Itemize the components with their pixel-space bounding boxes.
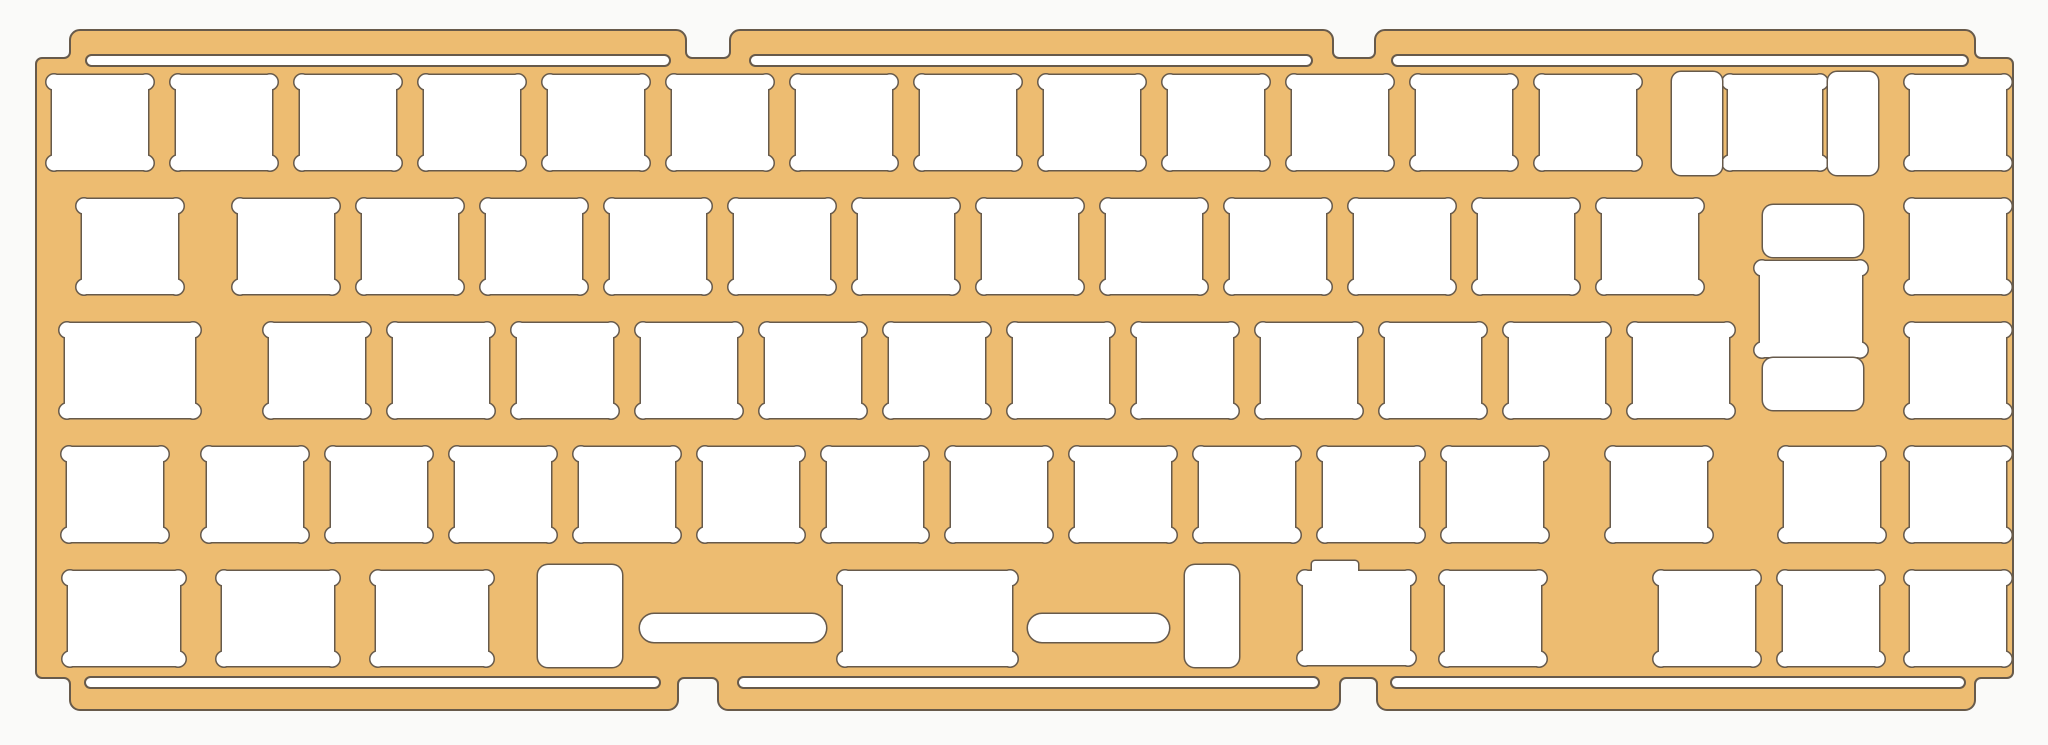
keyboard-plate-drawing [0,0,2048,745]
switch-cutout-shift-row [698,447,805,543]
switch-cutout-number-row [295,75,402,171]
switch-cutout-bottom-row-mod [217,571,340,667]
bottom-edge-slot-middle [738,677,1319,688]
switch-cutout-shift-row [1194,447,1301,543]
switch-cutout-caps-row [512,323,619,419]
switch-cutout-tab-row [1597,199,1704,295]
top-edge-slot-left [86,55,670,66]
bottom-row-mod-stepped-cutout [1298,561,1416,666]
spacebar-stab-left-cutout [538,565,622,667]
switch-cutout-caps-row [1628,323,1735,419]
iso-enter-stab-bottom-cutout [1763,358,1863,410]
switch-cutout-number-row-backspace [1723,75,1828,171]
spacebar-stab-right-cutout [1185,565,1239,667]
switch-cutout-tab-row [605,199,712,295]
switch-cutout-caps-row [388,323,495,419]
spacebar-slot-left-cutout [640,614,826,642]
switch-cutout-number-row [1905,75,2012,171]
switch-cutout-tab-row [853,199,960,295]
switch-cutout-shift-row [450,447,557,543]
switch-cutout-shift-row-rshift [1606,447,1713,543]
backspace-stab-right-cutout [1828,72,1878,175]
switch-cutout-bottom-row-mod [63,571,186,667]
switch-cutout-caps-row [1504,323,1611,419]
switch-cutout-tab-row [1101,199,1208,295]
switch-cutout-number-row [1039,75,1146,171]
switch-cutout-number-row [1411,75,1518,171]
top-edge-slot-right [1392,55,1968,66]
switch-cutout-shift-row [574,447,681,543]
switch-cutout-caps-row [636,323,743,419]
switch-cutout-caps-row [1132,323,1239,419]
switch-cutout-iso-enter [1755,261,1868,358]
switch-cutout-caps-row [1380,323,1487,419]
switch-cutout-tab-row [977,199,1084,295]
switch-cutout-number-row [1535,75,1642,171]
spacebar-slot-right-cutout [1028,614,1169,642]
switch-cutout-number-row [667,75,774,171]
switch-cutout-tab-row [481,199,588,295]
switch-cutout-number-row [47,75,154,171]
switch-cutout-number-row [1163,75,1270,171]
switch-cutout-bottom-row-arrow [1654,571,1761,667]
iso-enter-stab-top-cutout [1763,205,1863,257]
switch-cutout-tab-row [357,199,464,295]
switch-cutout-bottom-row-spacebar [838,571,1018,667]
switch-cutout-shift-row [1070,447,1177,543]
switch-cutout-caps-row [884,323,991,419]
top-edge-slot-middle [750,55,1312,66]
switch-cutout-shift-row [1318,447,1425,543]
keyboard-plate-svg [0,0,2048,745]
switch-cutout-shift-row [822,447,929,543]
switch-cutout-shift-row-lshift [62,447,169,543]
switch-cutout-number-row [915,75,1022,171]
switch-cutout-tab-row [233,199,340,295]
switch-cutout-shift-row [326,447,433,543]
switch-cutout-caps-row [1256,323,1363,419]
switch-cutout-number-row [171,75,278,171]
switch-cutout-bottom-row-arrow [1905,571,2012,667]
switch-cutout-number-row [791,75,898,171]
switch-cutout-tab-row [1473,199,1580,295]
switch-cutout-bottom-row-arrow [1778,571,1885,667]
switch-cutout-caps-row [760,323,867,419]
switch-cutout-tab-row [1905,199,2012,295]
switch-cutout-number-row [543,75,650,171]
switch-cutout-caps-row [1008,323,1115,419]
switch-cutout-tab-row [1225,199,1332,295]
switch-cutout-caps-row [264,323,371,419]
switch-cutout-shift-row [1779,447,1886,543]
switch-cutout-bottom-row-mod [1440,571,1547,667]
switch-cutout-tab-row [729,199,836,295]
backspace-stab-left-cutout [1672,72,1722,175]
switch-cutout-caps-row [1905,323,2012,419]
switch-cutout-tab-row [77,199,184,295]
switch-cutout-number-row [1287,75,1394,171]
switch-cutout-bottom-row-mod [371,571,494,667]
bottom-edge-slot-left [85,677,660,688]
switch-cutout-tab-row [1349,199,1456,295]
switch-cutout-shift-row [1442,447,1549,543]
switch-cutout-shift-row [946,447,1053,543]
switch-cutout-caps-row-capslock [60,323,201,419]
switch-cutout-number-row [419,75,526,171]
switch-cutout-shift-row [202,447,309,543]
bottom-edge-slot-right [1391,677,1965,688]
switch-cutout-shift-row [1905,447,2012,543]
